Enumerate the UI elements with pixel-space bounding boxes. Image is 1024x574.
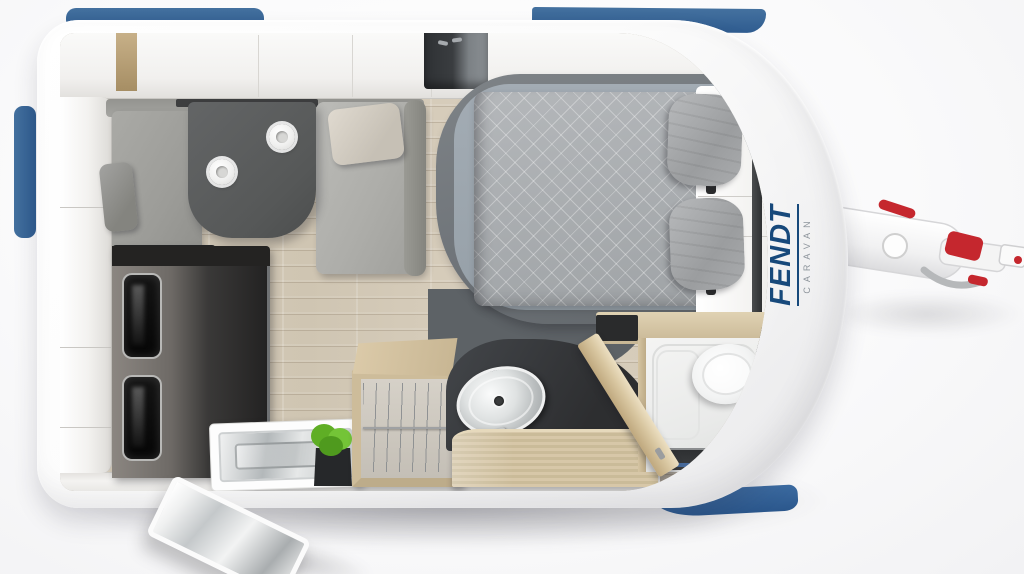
caravan-interior-floor: [60, 33, 768, 491]
bed-pillow: [666, 93, 743, 188]
coffee-cup: [269, 124, 295, 150]
coupling-head: [999, 244, 1024, 267]
caravan-floorplan: FENDT CARAVAN: [0, 0, 1024, 574]
fridge-compartment: [122, 273, 162, 359]
brand-logo: FENDT CARAVAN: [754, 185, 824, 325]
brand-subtitle: CARAVAN: [802, 216, 812, 293]
pantry-lid: [348, 338, 462, 376]
drawbar-pivot: [883, 234, 907, 258]
bench-armrest: [404, 100, 426, 276]
door-handle: [654, 447, 665, 460]
oven-compartment: [122, 375, 162, 461]
kitchen-tower-top: [112, 246, 270, 266]
shelf-rod: [363, 427, 451, 429]
front-window-slot: [736, 33, 764, 95]
cushion-right: [327, 102, 405, 166]
window-left: [14, 106, 36, 238]
left-wall-cabinets: [60, 97, 112, 473]
brand-name: FENDT: [767, 204, 799, 306]
sink-drain: [494, 396, 504, 406]
coupling-dot-red: [1014, 256, 1022, 264]
cushion-left: [99, 161, 139, 232]
dinette-table: [188, 102, 316, 238]
wardrobe-hinge: [438, 40, 449, 46]
locker-seam: [352, 35, 353, 97]
plant-leaves: [319, 436, 343, 456]
coffee-cup: [209, 159, 235, 185]
wardrobe-hinge: [452, 37, 462, 42]
locker-seam: [258, 35, 259, 97]
bed-pillow: [668, 197, 745, 292]
cabinet-seam: [60, 427, 111, 428]
bathroom-shelf-gap: [596, 315, 638, 341]
counter-front-drawer: [452, 429, 658, 487]
cabinet-seam: [60, 347, 111, 348]
cabinet-divider: [116, 33, 137, 91]
wardrobe-open: [424, 33, 488, 89]
